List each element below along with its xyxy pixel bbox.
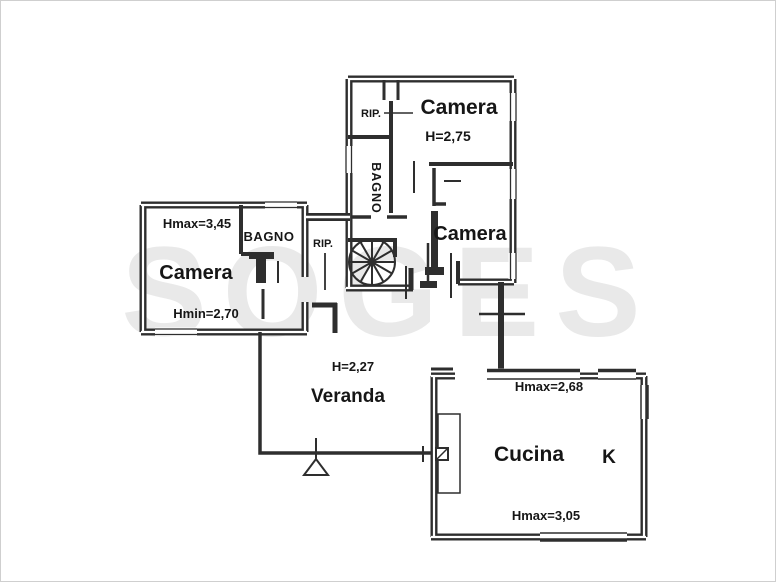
watermark-text: SOGES xyxy=(121,221,656,364)
cucina-label: Cucina xyxy=(494,443,564,466)
veranda-height-label: H=2,27 xyxy=(332,359,374,374)
bagno-left-label: BAGNO xyxy=(244,229,295,244)
camera-left-label: Camera xyxy=(159,262,233,284)
meter-symbol xyxy=(436,448,448,460)
camera-left-hmin-label: Hmin=2,70 xyxy=(173,306,238,321)
rip-mid-label: RIP. xyxy=(313,238,333,250)
gate-valve-symbol xyxy=(304,438,328,475)
camera-top-height-label: H=2,75 xyxy=(425,128,471,144)
rip-top-label: RIP. xyxy=(361,108,381,120)
bagno-central-label: BAGNO xyxy=(369,162,383,214)
camera-left-hmax-label: Hmax=3,45 xyxy=(163,216,231,231)
floor-plan-page: SOGES xyxy=(0,0,776,582)
cucina-fixtures xyxy=(436,414,460,493)
kitchen-mark-label: K xyxy=(602,447,616,468)
cucina-hmax-bottom-label: Hmax=3,05 xyxy=(512,508,580,523)
veranda-label: Veranda xyxy=(311,386,385,407)
camera-mid-label: Camera xyxy=(433,223,507,245)
spiral-staircase-icon xyxy=(349,239,395,285)
cucina-hmax-top-label: Hmax=2,68 xyxy=(515,379,583,394)
camera-top-label: Camera xyxy=(420,96,497,119)
floor-plan-drawing: SOGES xyxy=(1,1,775,581)
cucina-block: Hmax=2,68 Cucina K Hmax=3,05 xyxy=(431,368,650,542)
